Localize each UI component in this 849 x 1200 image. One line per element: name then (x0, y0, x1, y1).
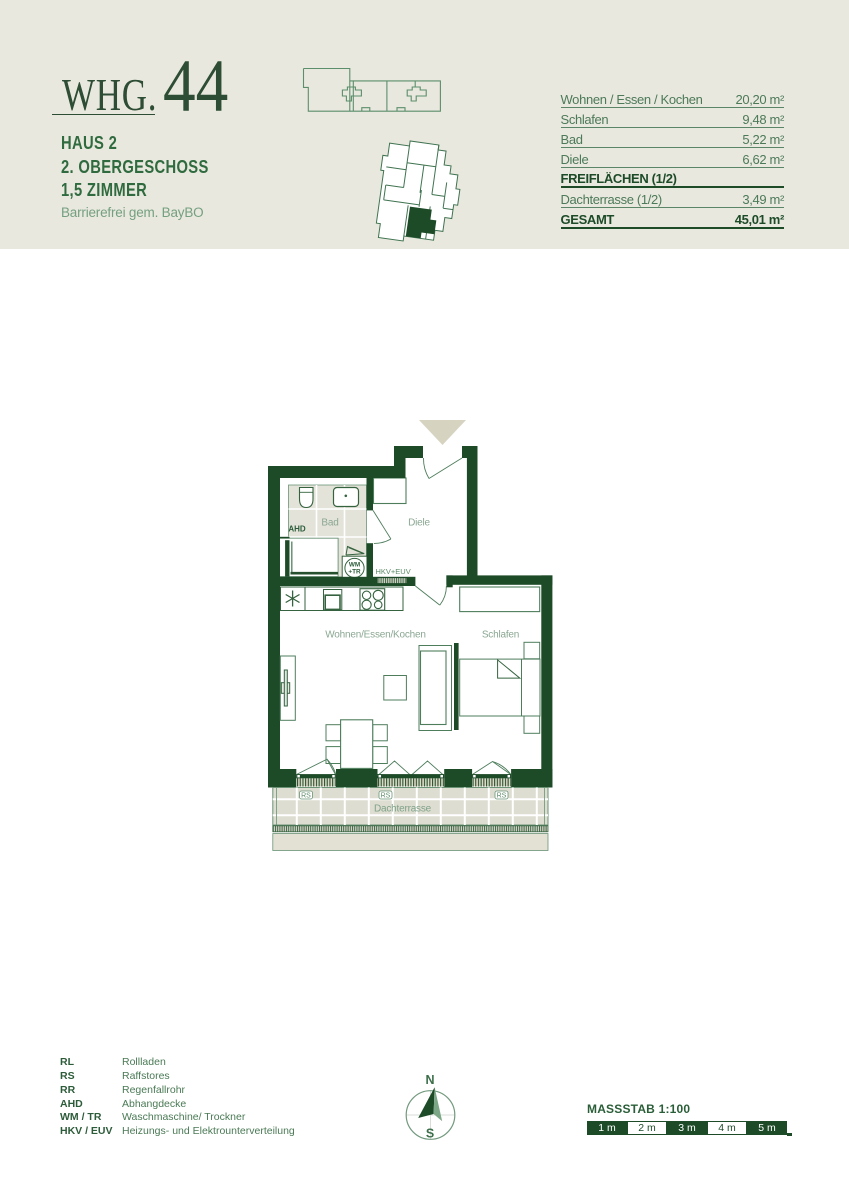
svg-text:Bad: Bad (321, 518, 338, 529)
svg-text:Wohnen/Essen/Kochen: Wohnen/Essen/Kochen (325, 630, 426, 641)
svg-text:N: N (425, 1073, 434, 1087)
svg-text:Diele: Diele (408, 518, 430, 529)
svg-text:RS: RS (301, 792, 311, 799)
svg-text:S: S (426, 1127, 434, 1141)
svg-text:Dachterrasse: Dachterrasse (374, 804, 432, 815)
svg-text:HKV+EUV: HKV+EUV (376, 567, 411, 576)
svg-text:+TR: +TR (348, 569, 361, 576)
svg-text:AHD: AHD (288, 525, 306, 534)
svg-text:Schlafen: Schlafen (482, 630, 519, 641)
svg-text:RS: RS (381, 792, 391, 799)
svg-text:RS: RS (497, 792, 507, 799)
svg-text:WM: WM (349, 562, 360, 569)
